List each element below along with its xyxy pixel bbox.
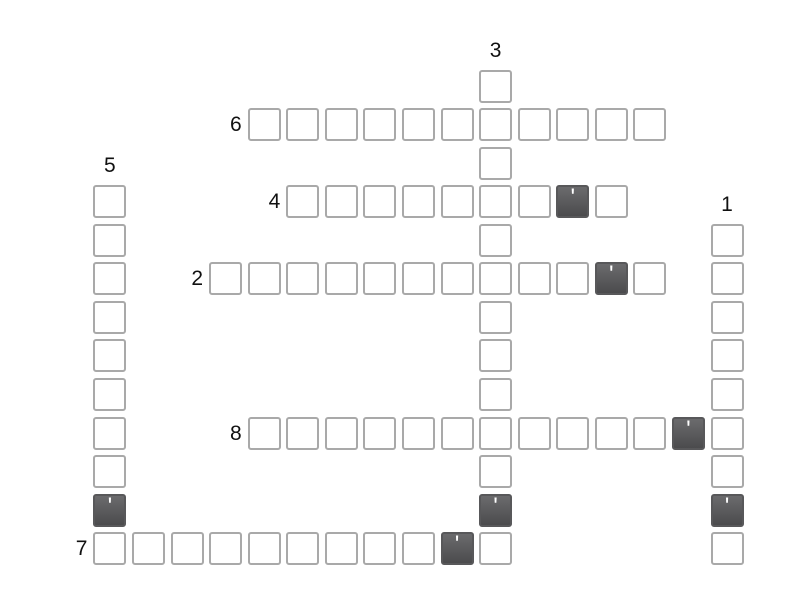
crossword-cell[interactable] [286,532,319,565]
prefilled-apostrophe-cell: ' [711,494,744,527]
clue-number-5: 5 [93,151,126,181]
crossword-cell[interactable] [595,108,628,141]
crossword-cell[interactable] [402,532,435,565]
crossword-cell[interactable] [711,339,744,372]
crossword-cell[interactable] [556,262,589,295]
crossword-cell[interactable] [93,224,126,257]
crossword-cell[interactable] [441,108,474,141]
crossword-cell[interactable] [556,108,589,141]
apostrophe-char: ' [597,264,626,286]
crossword-cell[interactable] [441,185,474,218]
clue-number-1: 1 [711,190,744,220]
crossword-cell[interactable] [711,532,744,565]
crossword-cell[interactable] [595,185,628,218]
crossword-cell[interactable] [363,108,396,141]
crossword-cell[interactable] [325,262,358,295]
crossword-cell[interactable] [402,108,435,141]
crossword-cell[interactable] [711,455,744,488]
apostrophe-char: ' [674,419,703,441]
crossword-cell[interactable] [633,417,666,450]
prefilled-apostrophe-cell: ' [479,494,512,527]
crossword-cell[interactable] [479,455,512,488]
crossword-cell[interactable] [286,262,319,295]
prefilled-apostrophe-cell: ' [93,494,126,527]
crossword-cell[interactable] [711,417,744,450]
clue-number-7: 7 [52,532,87,565]
crossword-cell[interactable] [93,417,126,450]
crossword-cell[interactable] [479,378,512,411]
crossword-cell[interactable] [325,108,358,141]
crossword-cell[interactable] [518,108,551,141]
clue-number-4: 4 [245,185,280,218]
crossword-cell[interactable] [286,185,319,218]
crossword-cell[interactable] [93,378,126,411]
crossword-cell[interactable] [363,262,396,295]
crossword-cell[interactable] [325,417,358,450]
crossword-cell[interactable] [518,185,551,218]
crossword-cell[interactable] [248,262,281,295]
clue-number-8: 8 [207,417,242,450]
crossword-cell[interactable] [441,417,474,450]
crossword-cell[interactable] [479,224,512,257]
crossword-cell[interactable] [286,108,319,141]
crossword-cell[interactable] [479,532,512,565]
crossword-cell[interactable] [479,417,512,450]
crossword-cell[interactable] [518,417,551,450]
crossword-cell[interactable] [402,417,435,450]
crossword-cell[interactable] [325,532,358,565]
crossword-cell[interactable] [248,532,281,565]
clue-number-6: 6 [207,108,242,141]
crossword-cell[interactable] [209,262,242,295]
crossword-cell[interactable] [711,378,744,411]
crossword-cell[interactable] [633,262,666,295]
crossword-board: 1'2'3'4'5'67'8' [0,0,800,600]
crossword-cell[interactable] [479,339,512,372]
crossword-cell[interactable] [479,185,512,218]
crossword-cell[interactable] [93,455,126,488]
prefilled-apostrophe-cell: ' [595,262,628,295]
prefilled-apostrophe-cell: ' [672,417,705,450]
crossword-cell[interactable] [93,301,126,334]
crossword-cell[interactable] [248,417,281,450]
crossword-cell[interactable] [595,417,628,450]
crossword-cell[interactable] [93,185,126,218]
crossword-cell[interactable] [633,108,666,141]
crossword-cell[interactable] [479,147,512,180]
crossword-cell[interactable] [363,532,396,565]
apostrophe-char: ' [95,496,124,518]
apostrophe-char: ' [558,187,587,209]
crossword-cell[interactable] [518,262,551,295]
crossword-cell[interactable] [93,262,126,295]
apostrophe-char: ' [713,496,742,518]
crossword-cell[interactable] [363,417,396,450]
crossword-cell[interactable] [711,224,744,257]
crossword-cell[interactable] [402,262,435,295]
prefilled-apostrophe-cell: ' [441,532,474,565]
crossword-cell[interactable] [248,108,281,141]
crossword-cell[interactable] [479,262,512,295]
crossword-cell[interactable] [93,532,126,565]
prefilled-apostrophe-cell: ' [556,185,589,218]
crossword-cell[interactable] [479,70,512,103]
crossword-cell[interactable] [402,185,435,218]
clue-number-3: 3 [479,36,512,66]
crossword-cell[interactable] [441,262,474,295]
crossword-cell[interactable] [286,417,319,450]
crossword-cell[interactable] [171,532,204,565]
crossword-cell[interactable] [132,532,165,565]
crossword-cell[interactable] [711,262,744,295]
crossword-cell[interactable] [209,532,242,565]
apostrophe-char: ' [443,534,472,556]
crossword-cell[interactable] [93,339,126,372]
clue-number-2: 2 [168,262,203,295]
crossword-cell[interactable] [325,185,358,218]
crossword-cell[interactable] [479,108,512,141]
crossword-cell[interactable] [363,185,396,218]
apostrophe-char: ' [481,496,510,518]
crossword-cell[interactable] [556,417,589,450]
crossword-cell[interactable] [479,301,512,334]
crossword-cell[interactable] [711,301,744,334]
